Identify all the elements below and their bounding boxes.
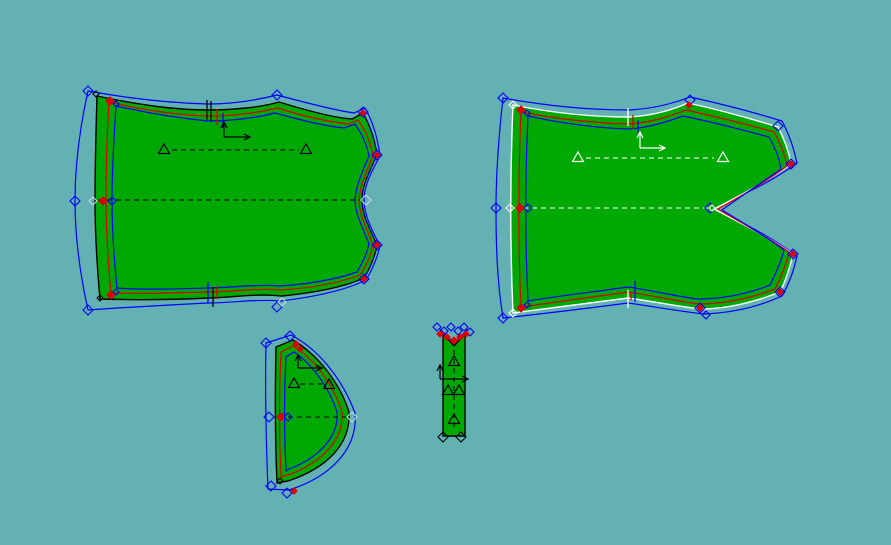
pattern-piece-front-panel[interactable]	[70, 86, 382, 315]
piece-outline[interactable]	[443, 334, 465, 436]
control-point-diamond[interactable]	[447, 323, 455, 331]
pattern-canvas[interactable]	[0, 0, 891, 545]
pattern-piece-side[interactable]	[261, 331, 357, 498]
control-point-diamond[interactable]	[433, 323, 441, 331]
control-point-diamond[interactable]	[702, 311, 710, 319]
pattern-piece-strap[interactable]	[433, 323, 474, 442]
pattern-piece-back-panel[interactable]	[491, 93, 798, 323]
control-point-diamond[interactable]	[272, 302, 282, 312]
